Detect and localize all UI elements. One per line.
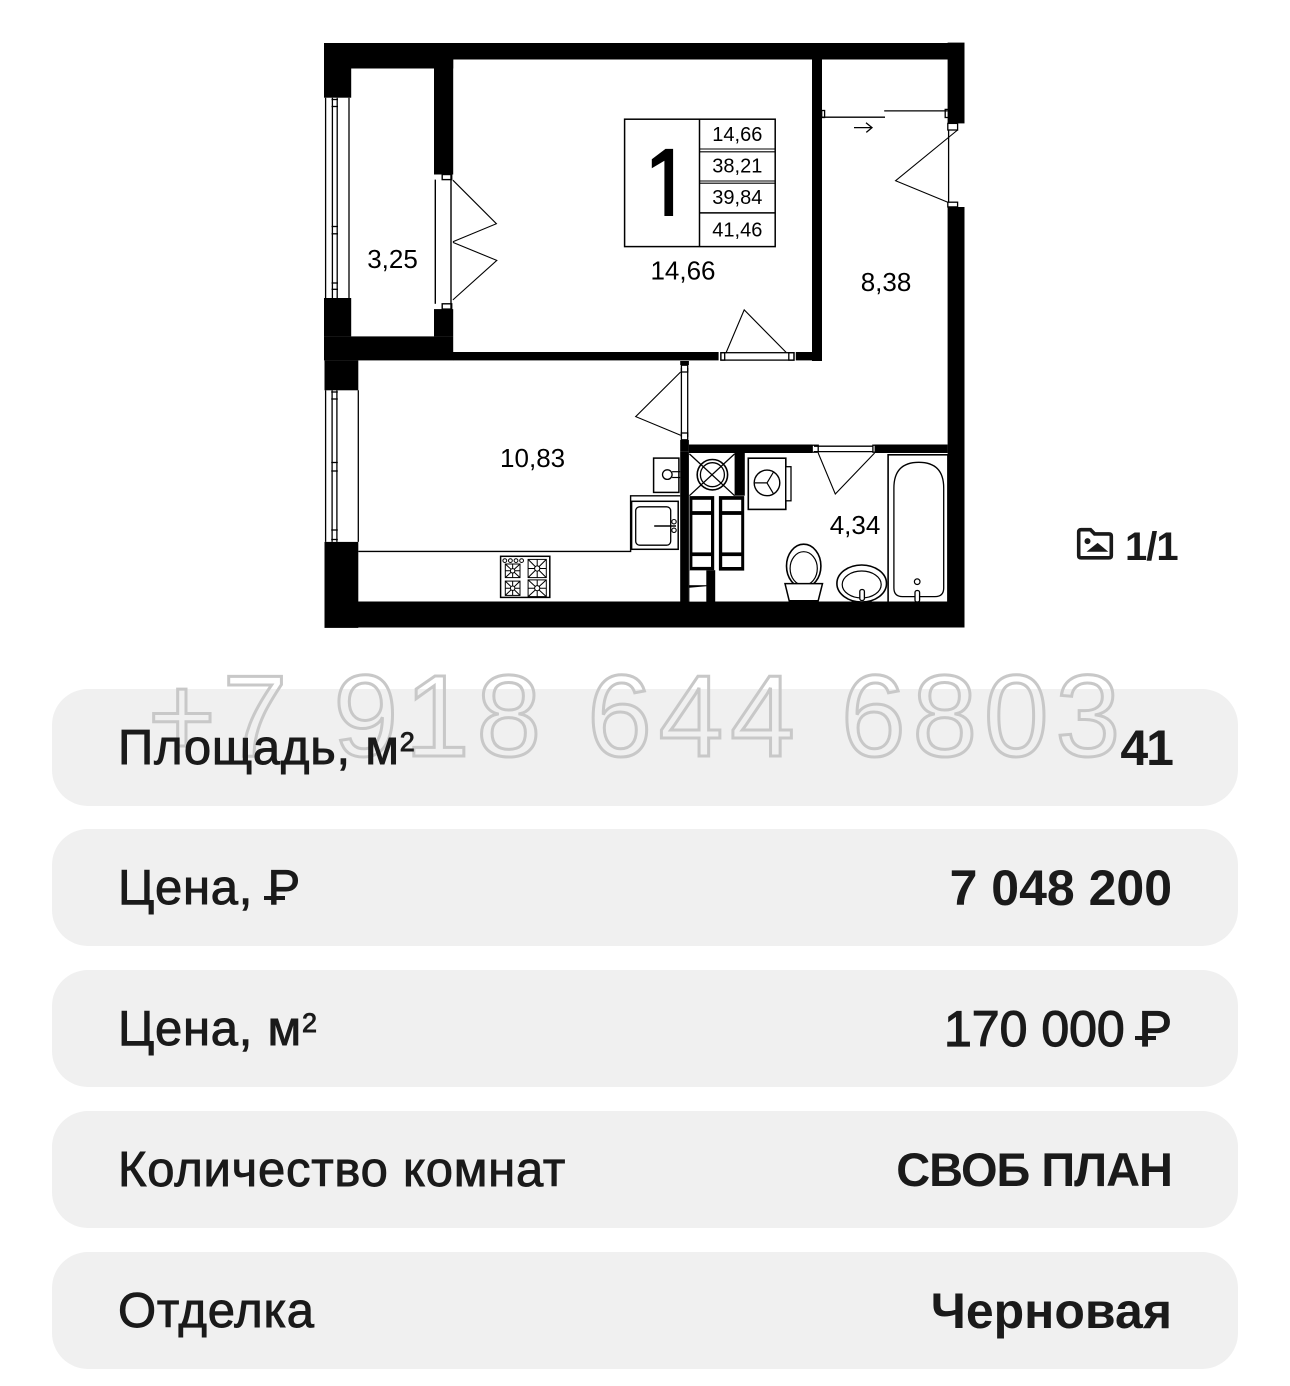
svg-text:39,84: 39,84 [712, 187, 762, 209]
svg-text:3,25: 3,25 [367, 244, 418, 274]
svg-text:10,83: 10,83 [500, 443, 565, 473]
svg-text:14,66: 14,66 [712, 124, 762, 146]
svg-text:41,46: 41,46 [712, 220, 762, 242]
svg-text:4,34: 4,34 [830, 510, 881, 540]
svg-text:8,38: 8,38 [861, 267, 912, 297]
svg-text:38,21: 38,21 [712, 156, 762, 178]
svg-text:14,66: 14,66 [650, 256, 715, 286]
